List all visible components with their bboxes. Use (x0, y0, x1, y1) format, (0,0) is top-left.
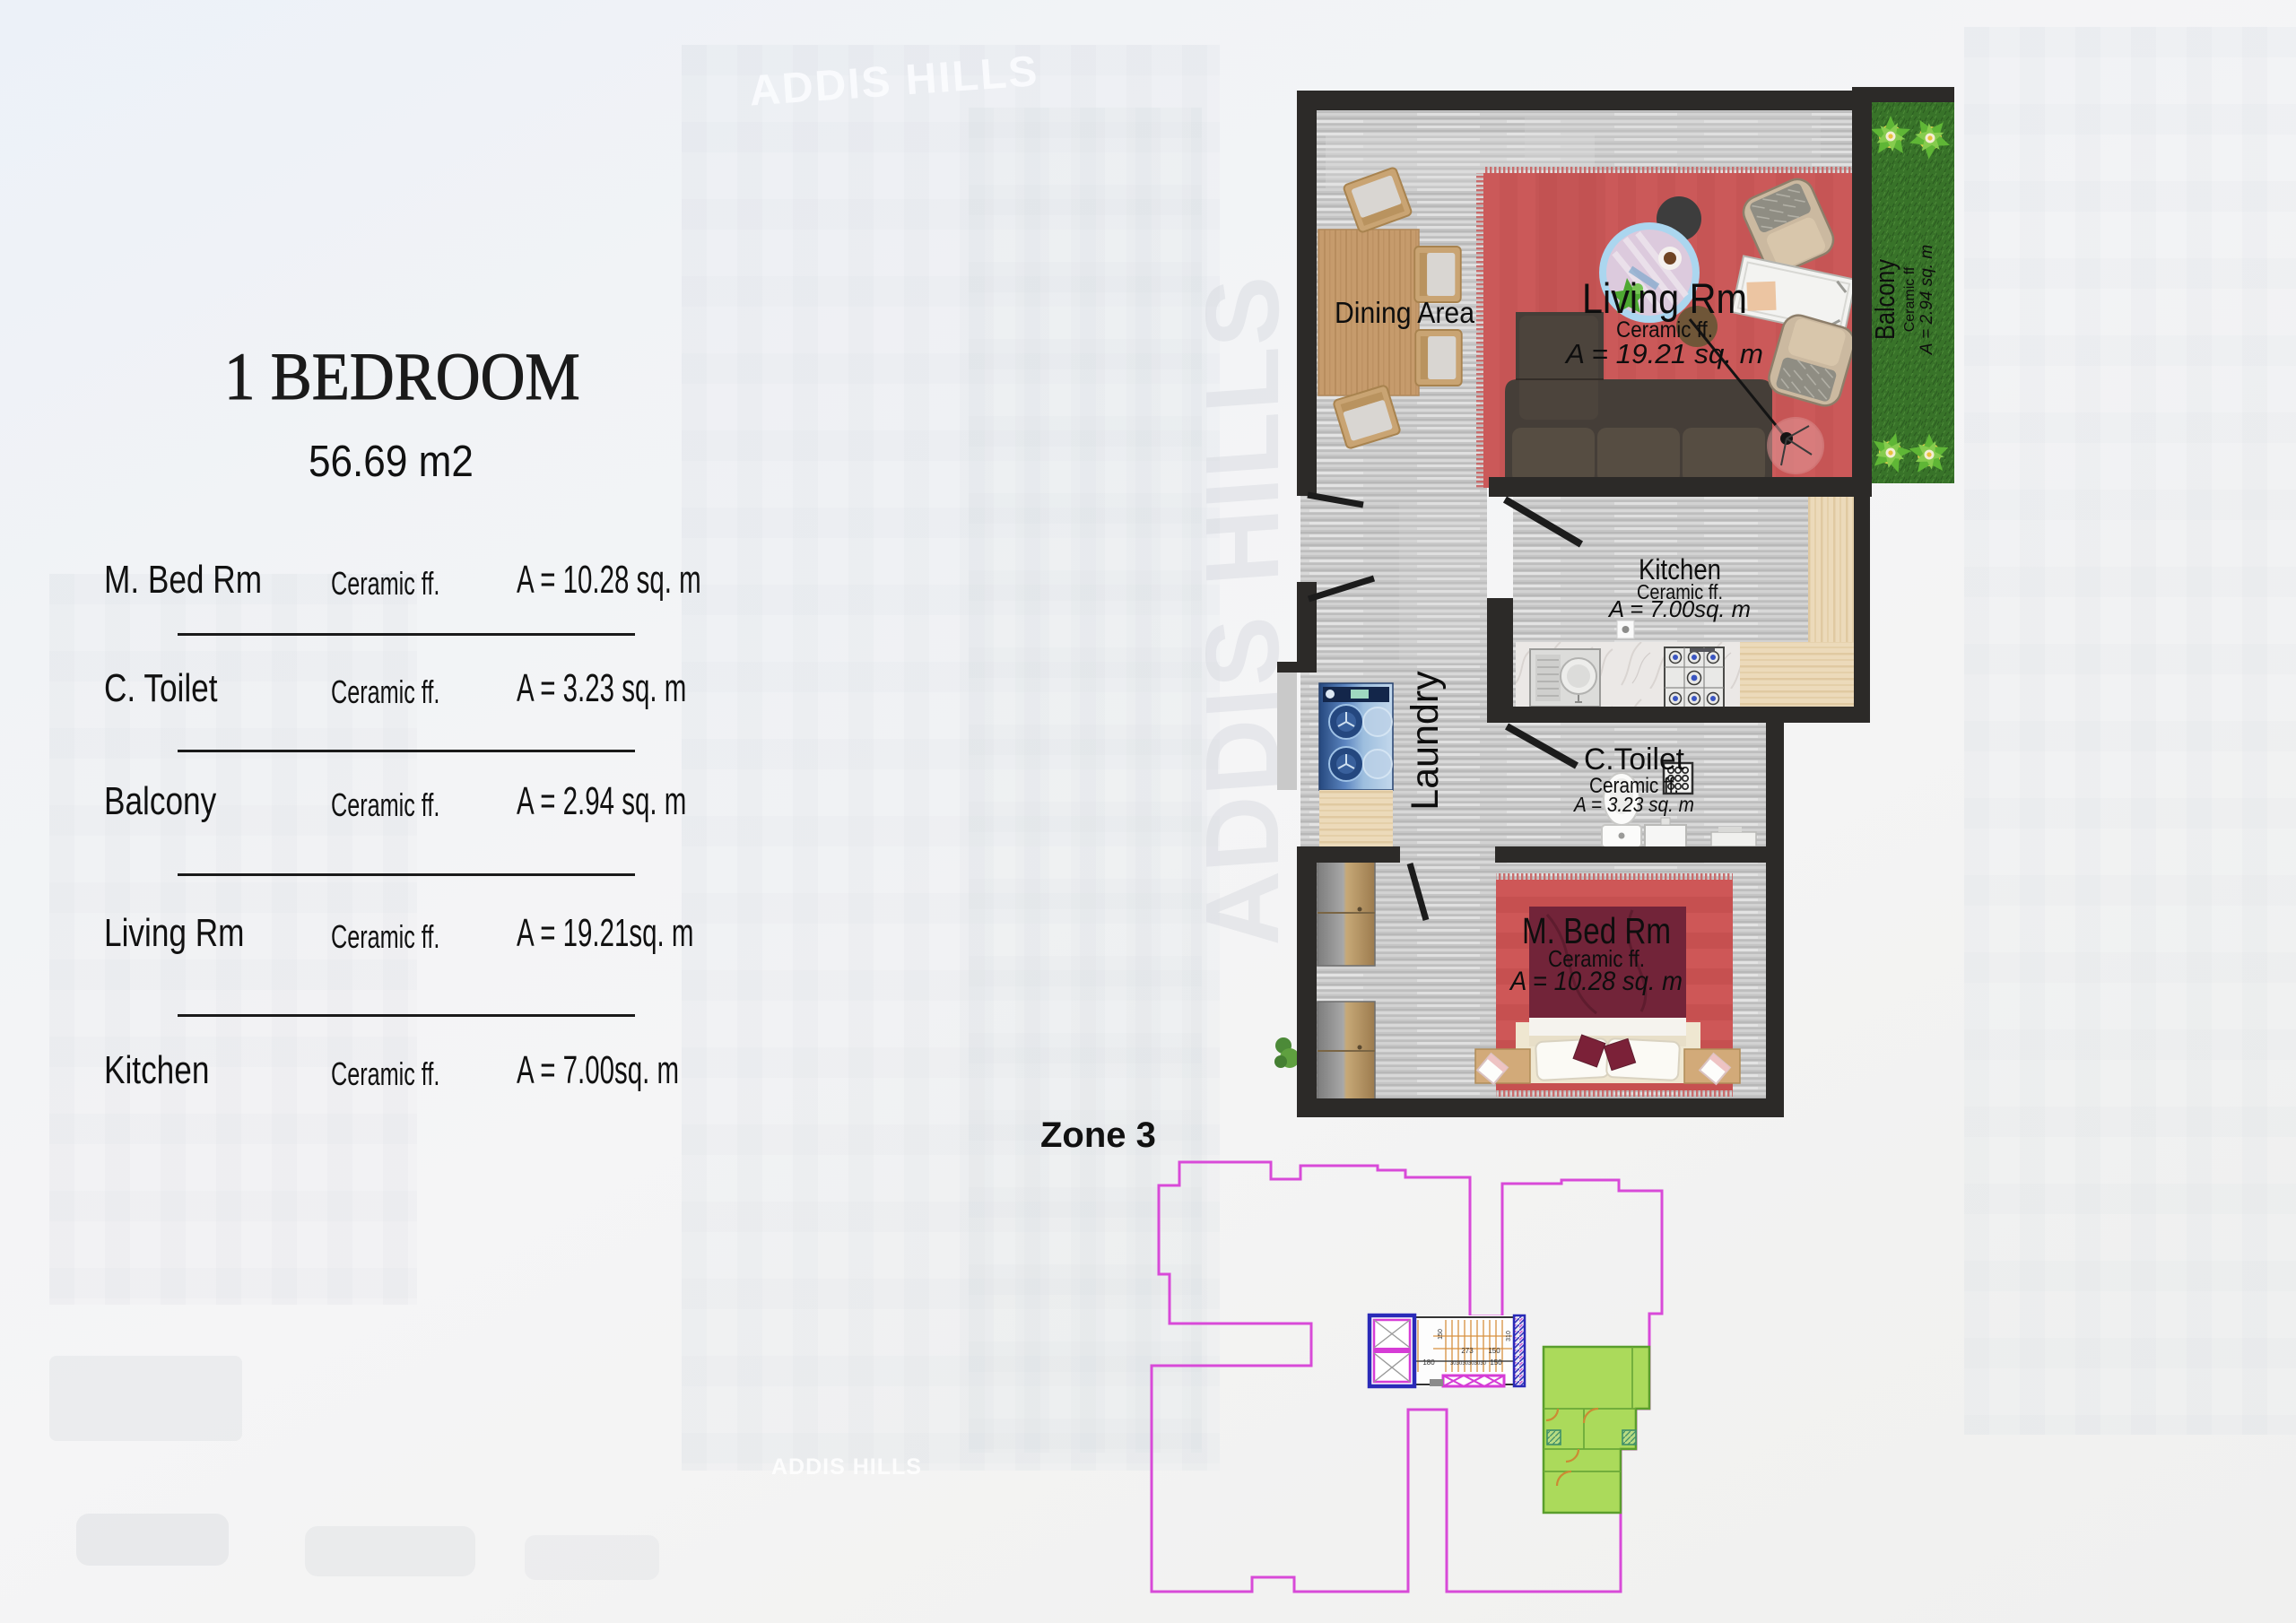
svg-text:A = 2.94 sq. m: A = 2.94 sq. m (1918, 245, 1936, 355)
svg-text:Ceramic ff: Ceramic ff (1902, 266, 1918, 332)
svg-text:273: 273 (1461, 1347, 1474, 1355)
svg-text:Balcony: Balcony (1869, 259, 1900, 340)
svg-text:310: 310 (1506, 1331, 1512, 1341)
svg-text:180: 180 (1422, 1358, 1435, 1367)
svg-text:A = 10.28 sq. m: A = 10.28 sq. m (1509, 967, 1683, 996)
svg-text:150: 150 (1488, 1347, 1500, 1355)
svg-text:A = 7.00sq. m: A = 7.00sq. m (1607, 595, 1751, 622)
svg-text:Dining Area: Dining Area (1335, 296, 1475, 329)
svg-text:Laundry: Laundry (1404, 671, 1447, 811)
svg-text:150: 150 (1438, 1329, 1444, 1340)
svg-text:C.Toilet: C.Toilet (1584, 742, 1685, 777)
svg-text:A = 3.23 sq. m: A = 3.23 sq. m (1572, 793, 1694, 816)
svg-text:A = 19.21 sq. m: A = 19.21 sq. m (1564, 338, 1763, 369)
svg-text:Living Rm: Living Rm (1582, 274, 1747, 322)
svg-text:303030303030: 303030303030 (1450, 1361, 1487, 1367)
svg-text:150: 150 (1490, 1358, 1502, 1367)
